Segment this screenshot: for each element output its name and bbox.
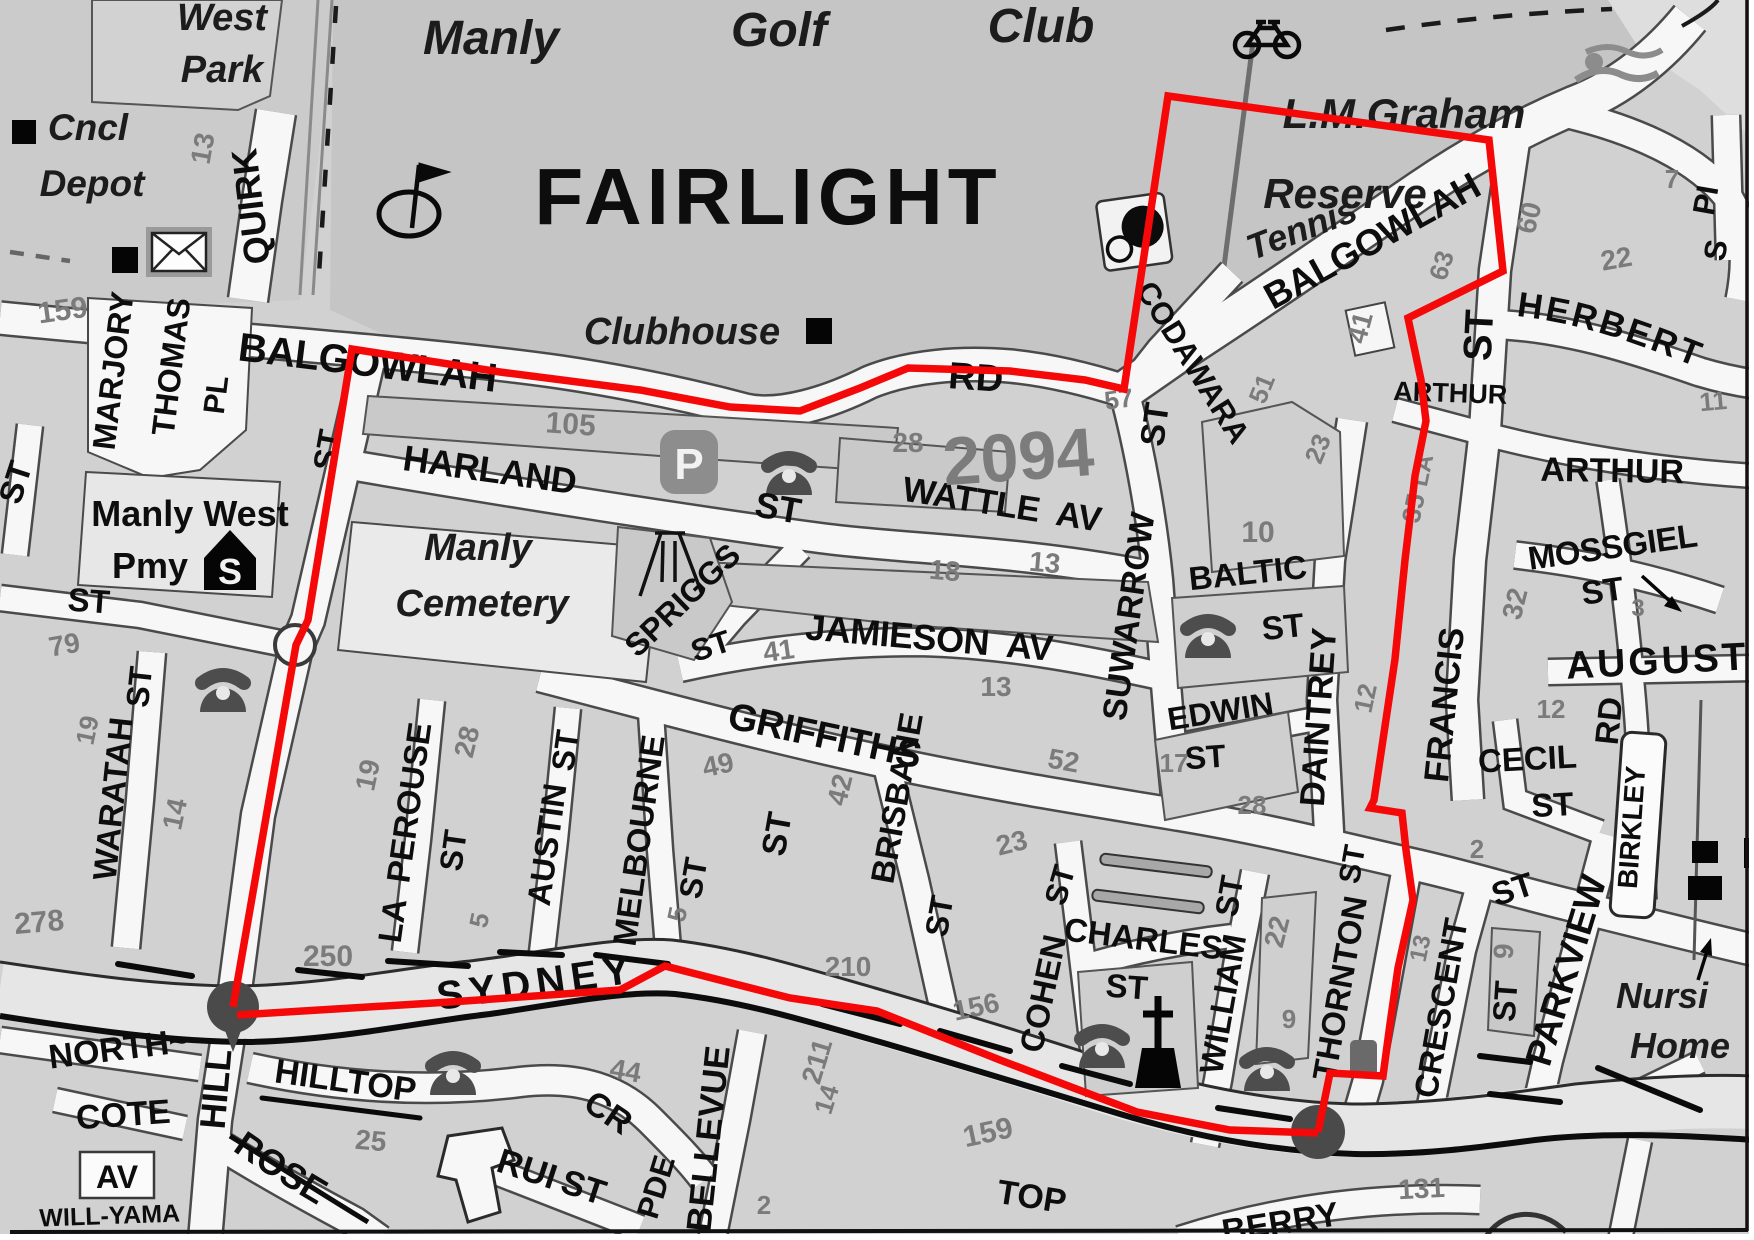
svg-text:ST: ST <box>1184 738 1228 777</box>
svg-text:ST: ST <box>119 664 159 709</box>
svg-text:9: 9 <box>1282 1004 1296 1034</box>
svg-text:131: 131 <box>1397 1172 1445 1205</box>
svg-text:12: 12 <box>1348 681 1383 716</box>
svg-text:Park: Park <box>181 49 265 91</box>
svg-text:18: 18 <box>928 554 962 588</box>
svg-text:ST: ST <box>1104 967 1149 1007</box>
svg-text:ST: ST <box>66 581 111 621</box>
svg-text:28: 28 <box>1238 790 1267 820</box>
svg-text:Pmy: Pmy <box>112 545 188 586</box>
svg-text:49: 49 <box>700 746 737 783</box>
svg-text:105: 105 <box>545 406 597 442</box>
svg-text:159: 159 <box>36 291 90 331</box>
svg-text:ARTHUR: ARTHUR <box>1540 451 1684 491</box>
svg-text:PI: PI <box>1686 183 1726 218</box>
svg-text:22: 22 <box>1598 241 1634 277</box>
svg-text:WILL-YAMA: WILL-YAMA <box>39 1200 181 1233</box>
svg-text:19: 19 <box>349 757 386 794</box>
svg-text:ST: ST <box>1333 843 1372 886</box>
svg-text:278: 278 <box>13 904 66 941</box>
svg-text:ST: ST <box>1530 785 1574 824</box>
svg-text:79: 79 <box>46 627 82 663</box>
svg-text:Manly: Manly <box>423 12 561 65</box>
svg-text:3: 3 <box>1631 595 1644 622</box>
svg-text:Home: Home <box>1630 1025 1730 1066</box>
svg-text:11: 11 <box>1698 385 1728 417</box>
svg-text:ARTHUR: ARTHUR <box>1393 376 1508 410</box>
svg-text:West: West <box>177 0 268 39</box>
svg-text:Cncl: Cncl <box>48 107 129 148</box>
svg-text:ST: ST <box>755 809 800 859</box>
svg-text:RD: RD <box>947 355 1005 401</box>
svg-text:28: 28 <box>892 427 923 458</box>
svg-text:Clubhouse: Clubhouse <box>584 311 780 353</box>
svg-text:Depot: Depot <box>40 163 147 204</box>
svg-text:2: 2 <box>1470 834 1484 864</box>
svg-text:CECIL: CECIL <box>1477 737 1578 779</box>
svg-text:9: 9 <box>1488 942 1520 960</box>
svg-text:Manly West: Manly West <box>91 493 288 534</box>
svg-text:Cemetery: Cemetery <box>395 583 570 625</box>
svg-text:Manly: Manly <box>424 527 534 569</box>
svg-text:19: 19 <box>70 713 105 748</box>
svg-text:13: 13 <box>980 671 1011 702</box>
svg-text:250: 250 <box>303 940 353 973</box>
svg-text:ST: ST <box>1579 569 1626 612</box>
svg-text:2094: 2094 <box>940 414 1096 500</box>
svg-text:ST: ST <box>1133 400 1177 449</box>
svg-text:210: 210 <box>825 951 872 982</box>
svg-text:ST: ST <box>752 484 804 532</box>
svg-text:FAIRLIGHT: FAIRLIGHT <box>534 152 1001 241</box>
svg-text:17: 17 <box>1160 748 1189 778</box>
svg-text:ST: ST <box>1208 872 1251 919</box>
svg-text:HILL: HILL <box>192 1047 240 1130</box>
svg-text:44: 44 <box>608 1053 644 1089</box>
svg-text:7: 7 <box>1665 164 1679 194</box>
svg-text:ST: ST <box>306 426 349 473</box>
svg-text:ST: ST <box>1456 309 1503 362</box>
svg-text:Golf: Golf <box>731 4 831 57</box>
svg-text:ST: ST <box>1486 979 1525 1023</box>
svg-text:2: 2 <box>757 1190 771 1220</box>
svg-text:ST: ST <box>918 892 961 939</box>
svg-text:25: 25 <box>354 1124 388 1158</box>
svg-text:ST: ST <box>1260 606 1306 647</box>
svg-text:Nursi: Nursi <box>1616 975 1709 1016</box>
svg-text:ST: ST <box>432 827 473 873</box>
svg-text:13: 13 <box>1028 546 1062 580</box>
svg-text:PL: PL <box>198 374 235 416</box>
svg-text:RD: RD <box>1588 695 1630 746</box>
svg-text:10: 10 <box>1241 516 1274 549</box>
svg-text:52: 52 <box>1046 743 1082 779</box>
svg-text:AV: AV <box>96 1159 139 1195</box>
svg-text:COTE: COTE <box>75 1093 172 1137</box>
svg-text:13: 13 <box>1405 933 1437 965</box>
svg-text:12: 12 <box>1537 694 1566 724</box>
svg-text:P: P <box>674 440 703 489</box>
svg-text:ST: ST <box>672 854 715 901</box>
svg-text:S: S <box>218 551 242 592</box>
svg-text:Club: Club <box>988 0 1095 53</box>
svg-text:ST: ST <box>544 727 585 773</box>
svg-text:13: 13 <box>185 130 221 166</box>
svg-text:41: 41 <box>761 633 796 668</box>
